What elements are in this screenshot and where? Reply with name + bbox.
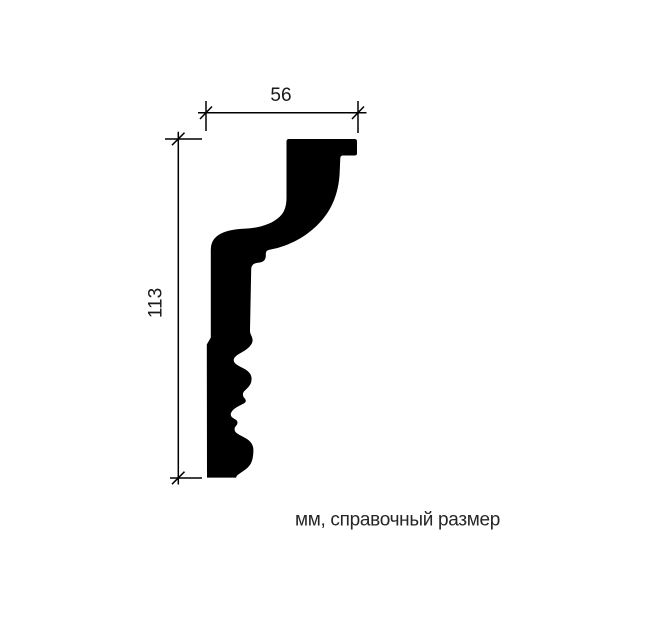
height-dimension-label: 113 (146, 288, 167, 318)
width-dimension-label: 56 (270, 85, 291, 106)
width-dimension: 56 (198, 85, 367, 133)
height-dimension: 113 (146, 132, 203, 485)
drawing-canvas: 56 113 мм, справочный размер (0, 0, 650, 618)
technical-drawing: 56 113 мм, справочный размер (0, 0, 650, 618)
caption-text: мм, справочный размер (295, 510, 500, 531)
molding-profile-silhouette (207, 139, 357, 478)
